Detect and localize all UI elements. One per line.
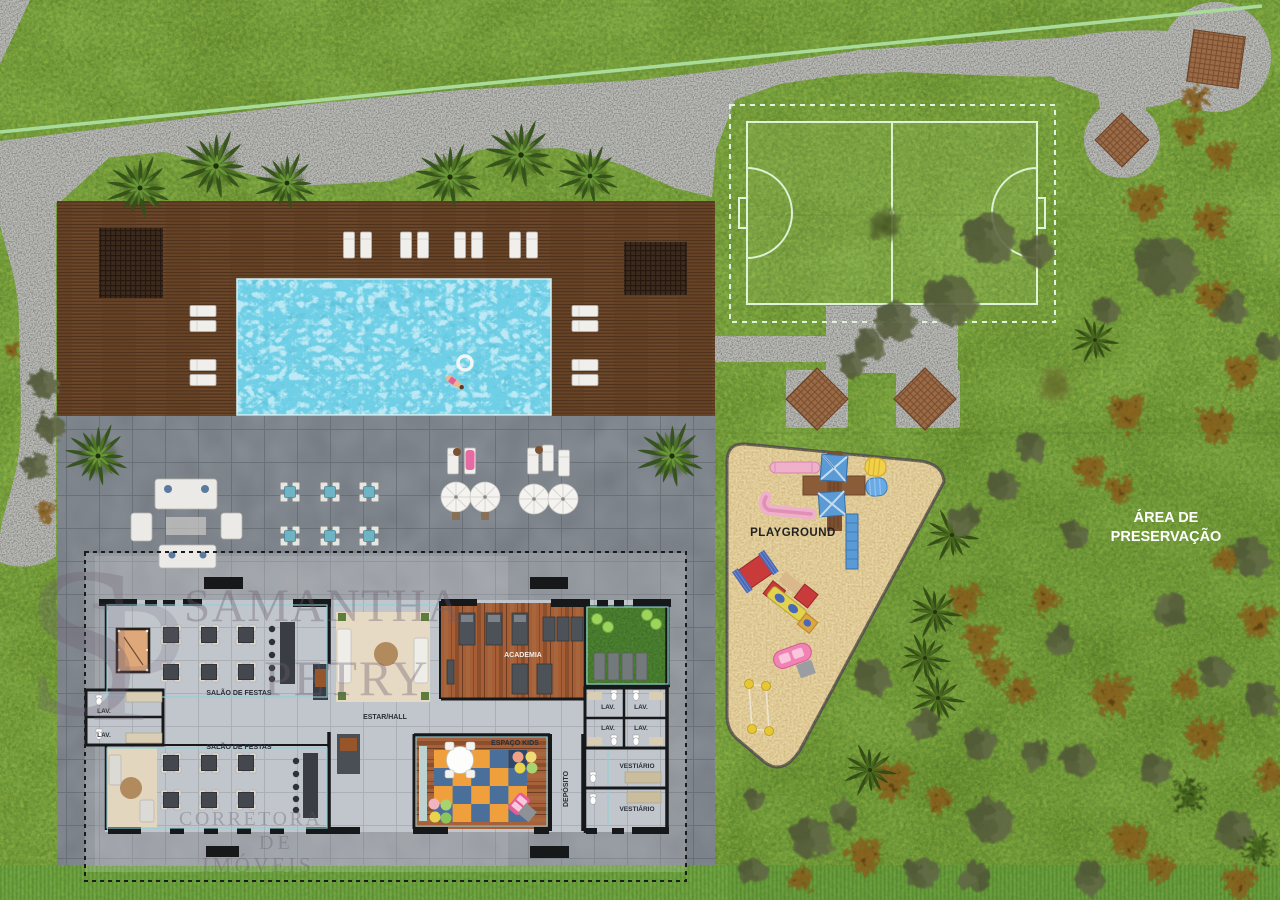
svg-text:PLAYGROUND: PLAYGROUND [750, 527, 836, 539]
svg-text:ESTAR/HALL: ESTAR/HALL [363, 714, 408, 721]
svg-text:VESTIÁRIO: VESTIÁRIO [619, 804, 654, 813]
svg-text:SAMANTHA: SAMANTHA [184, 580, 462, 632]
svg-text:ESPAÇO KIDS: ESPAÇO KIDS [491, 740, 539, 747]
svg-text:CORRETORA: CORRETORA [179, 808, 322, 830]
svg-text:SALÃO DE FESTAS: SALÃO DE FESTAS [206, 742, 272, 751]
svg-text:P: P [88, 561, 187, 759]
svg-text:DE: DE [259, 832, 294, 854]
svg-text:PRESERVAÇÃO: PRESERVAÇÃO [1111, 527, 1222, 545]
svg-text:IMÓVEIS: IMÓVEIS [202, 853, 314, 877]
svg-text:ÁREA DE: ÁREA DE [1134, 509, 1199, 526]
svg-text:DEPÓSITO: DEPÓSITO [561, 770, 570, 807]
svg-text:VESTIÁRIO: VESTIÁRIO [619, 761, 654, 770]
svg-text:PETRY: PETRY [264, 650, 430, 706]
svg-text:SALÃO DE FESTAS: SALÃO DE FESTAS [206, 688, 272, 697]
svg-text:LAV.: LAV. [634, 725, 648, 732]
svg-text:ACADEMIA: ACADEMIA [504, 652, 542, 659]
svg-text:LAV.: LAV. [634, 704, 648, 711]
svg-text:LAV.: LAV. [601, 704, 615, 711]
svg-text:LAV.: LAV. [601, 725, 615, 732]
